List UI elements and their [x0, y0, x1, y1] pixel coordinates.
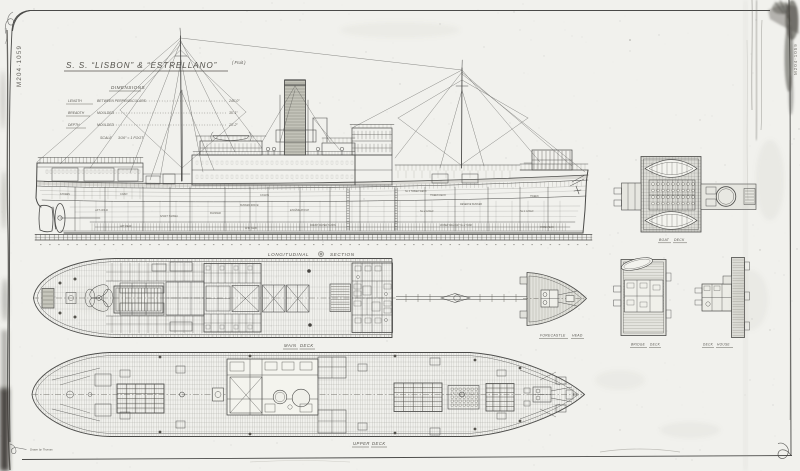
svg-text:No 1 HOLD: No 1 HOLD [520, 209, 534, 213]
svg-text:CABIN: CABIN [120, 193, 128, 196]
svg-text:CASING: CASING [260, 194, 269, 197]
svg-text:BETWEEN PERPENDICULARS: BETWEEN PERPENDICULARS [97, 99, 147, 103]
svg-text:STORES: STORES [60, 193, 70, 196]
svg-text:DECK: DECK [372, 441, 386, 446]
svg-text:FORECASTLE: FORECASTLE [540, 334, 566, 338]
svg-text:M204·1059: M204·1059 [793, 43, 798, 75]
svg-text:DECK: DECK [650, 343, 661, 347]
svg-text:No 2 TWEEN DECK: No 2 TWEEN DECK [405, 190, 427, 193]
svg-text:ENGINE ROOM: ENGINE ROOM [290, 208, 310, 212]
svg-text:UPPER: UPPER [353, 441, 370, 446]
svg-text:Drawn by Thomas: Drawn by Thomas [30, 448, 53, 452]
svg-text:( Fruit ): ( Fruit ) [232, 60, 246, 65]
svg-text:BUNKER: BUNKER [210, 211, 221, 215]
svg-text:BOAT: BOAT [659, 238, 670, 242]
svg-text:HOUSE: HOUSE [717, 343, 730, 347]
svg-text:BUNKER SPACE: BUNKER SPACE [240, 204, 259, 207]
svg-text:HEAD: HEAD [572, 334, 583, 338]
svg-text:DECK: DECK [703, 343, 714, 347]
svg-text:DECK: DECK [674, 238, 685, 242]
svg-text:RESERVE BUNKER: RESERVE BUNKER [460, 203, 482, 206]
svg-text:MAIN: MAIN [284, 343, 297, 348]
svg-text:SCALE: SCALE [100, 136, 112, 140]
svg-text:3/16″ = 1 FOOT: 3/16″ = 1 FOOT [118, 136, 144, 140]
svg-text:S. S. “LISBON” & “ESTRELLANO”: S. S. “LISBON” & “ESTRELLANO” [66, 61, 218, 70]
svg-text:SECTION: SECTION [330, 252, 355, 257]
svg-text:35'-1″: 35'-1″ [229, 111, 238, 115]
svg-text:TWEEN: TWEEN [530, 195, 539, 198]
svg-text:BRIDGE: BRIDGE [631, 343, 646, 347]
svg-text:DIMENSIONS: DIMENSIONS [111, 85, 146, 90]
svg-text:TWEEN DECK: TWEEN DECK [430, 194, 446, 197]
svg-text:LONGITUDINAL: LONGITUDINAL [268, 252, 309, 257]
svg-text:DECK: DECK [300, 343, 314, 348]
svg-text:SHAFT TUNNEL: SHAFT TUNNEL [160, 215, 179, 218]
svg-text:BREADTH: BREADTH [68, 111, 85, 115]
svg-text:No 2 HOLD: No 2 HOLD [420, 209, 434, 213]
svg-text:FRESH WATER TANKS: FRESH WATER TANKS [310, 224, 336, 227]
svg-text:AFT HOLD: AFT HOLD [94, 208, 108, 212]
svg-text:W.B. TANK: W.B. TANK [245, 227, 257, 230]
svg-text:M204·1059: M204·1059 [16, 45, 23, 87]
svg-text:FORE PEAK: FORE PEAK [540, 226, 554, 229]
svg-text:LENGTH: LENGTH [68, 99, 82, 103]
